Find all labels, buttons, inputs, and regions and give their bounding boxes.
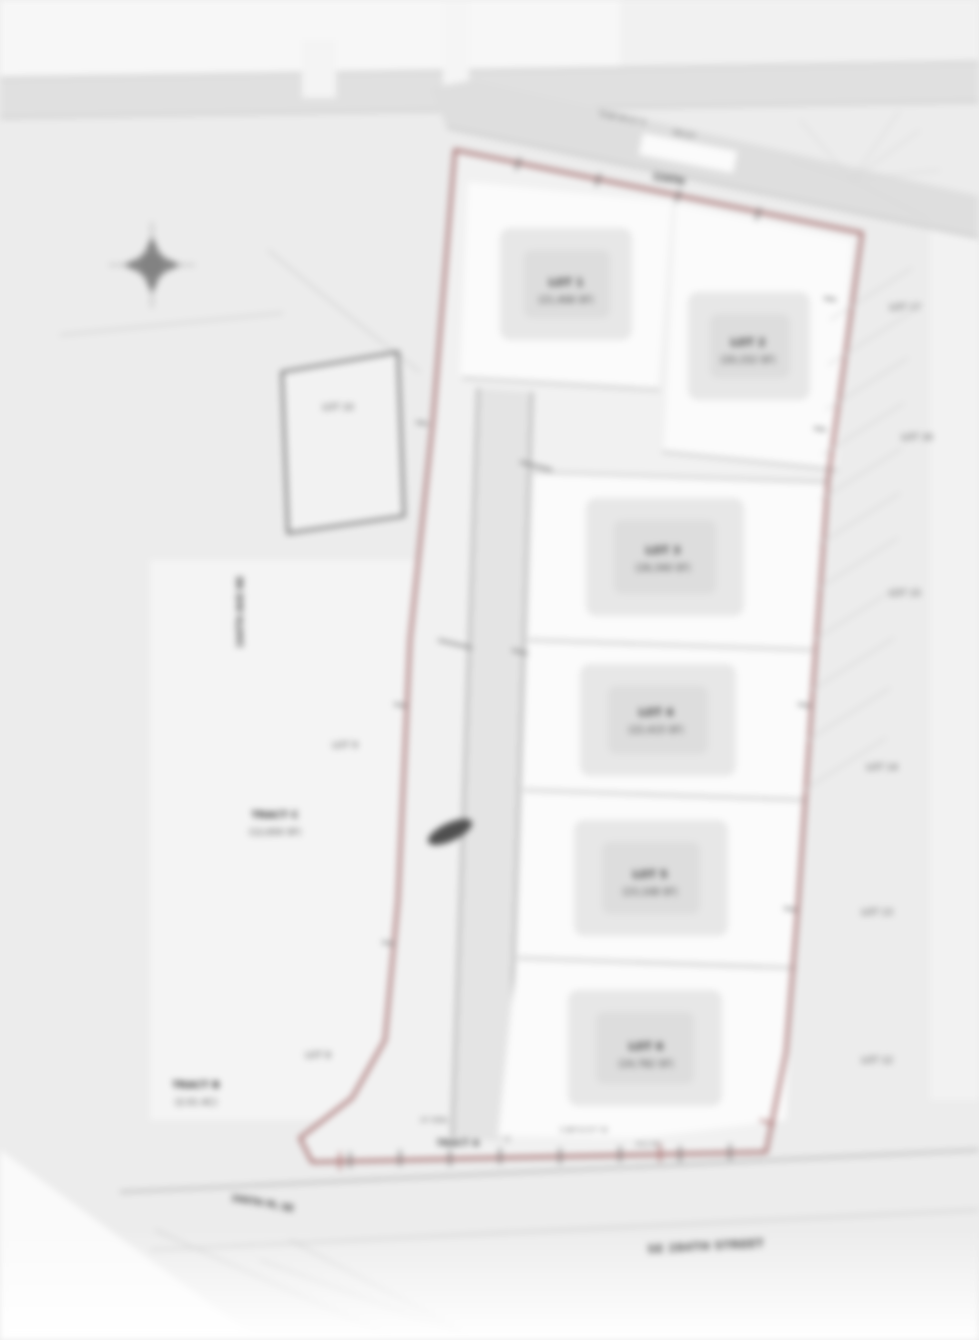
- site-plan-svg: LOT 1 (21,406 SF) LOT 2 (20,152 SF) LOT …: [0, 0, 979, 1340]
- east-parcel-label-1: LOT 17: [889, 303, 921, 313]
- lot-1-name: LOT 1: [549, 276, 584, 289]
- lot-6-name: LOT 6: [629, 1040, 664, 1053]
- tract-b-area: (2.01 AC): [175, 1098, 217, 1108]
- lot-6-area: (24,782 SF): [618, 1059, 673, 1070]
- lot-4-area: (22,415 SF): [628, 725, 683, 736]
- lot-2-name: LOT 2: [731, 336, 766, 349]
- lot-3-area: (26,340 SF): [635, 563, 690, 574]
- driveway-stub-center: [443, 0, 469, 90]
- blurred-plan-layer: LOT 1 (21,406 SF) LOT 2 (20,152 SF) LOT …: [0, 0, 979, 1340]
- lot-4-pad-inner: [608, 686, 708, 754]
- west-parcel-outline: [282, 352, 404, 533]
- bottom-fade: [0, 1230, 979, 1340]
- lot-4-name: LOT 4: [639, 706, 674, 719]
- east-parcel-label-2: LOT 16: [901, 433, 933, 443]
- east-parcel-label-4: LOT 14: [866, 763, 898, 773]
- east-light-field: [930, 200, 979, 1100]
- east-parcel-label-3: LOT 15: [889, 589, 921, 599]
- lot-3-name: LOT 3: [646, 544, 681, 557]
- bottom-bearing-text: S 88°51'07" W: [560, 1126, 608, 1134]
- west-parcel-lot8-label: LOT 8: [305, 1051, 331, 1061]
- lot-1-area: (21,406 SF): [538, 295, 593, 306]
- tract-c-name: TRACT C: [251, 810, 298, 821]
- tract-c-area: (12,650 SF): [249, 828, 301, 838]
- bottom-tract-text: TRACT A: [437, 1139, 480, 1149]
- west-road-name: 164TH AVE NE: [236, 576, 246, 648]
- east-parcel-label-6: LOT 12: [861, 1056, 893, 1066]
- lot-5-name: LOT 5: [633, 868, 668, 881]
- driveway-stub-west: [302, 40, 336, 98]
- bottom-setback-text: 20' BSBL: [420, 1116, 449, 1124]
- east-parcel-label-5: LOT 13: [861, 908, 893, 918]
- bottom-distance-text: 612.44': [636, 1140, 661, 1148]
- site-plan-screenshot: LOT 1 (21,406 SF) LOT 2 (20,152 SF) LOT …: [0, 0, 979, 1340]
- lot-2-area: (20,152 SF): [720, 355, 775, 366]
- lot-3-pad-inner: [614, 520, 716, 594]
- west-parcel-lot9-label: LOT 9: [332, 741, 358, 751]
- west-parcel-lot10-label: LOT 10: [322, 403, 354, 413]
- tract-b-name: TRACT B: [172, 1080, 220, 1091]
- lot-5-area: (23,108 SF): [622, 887, 677, 898]
